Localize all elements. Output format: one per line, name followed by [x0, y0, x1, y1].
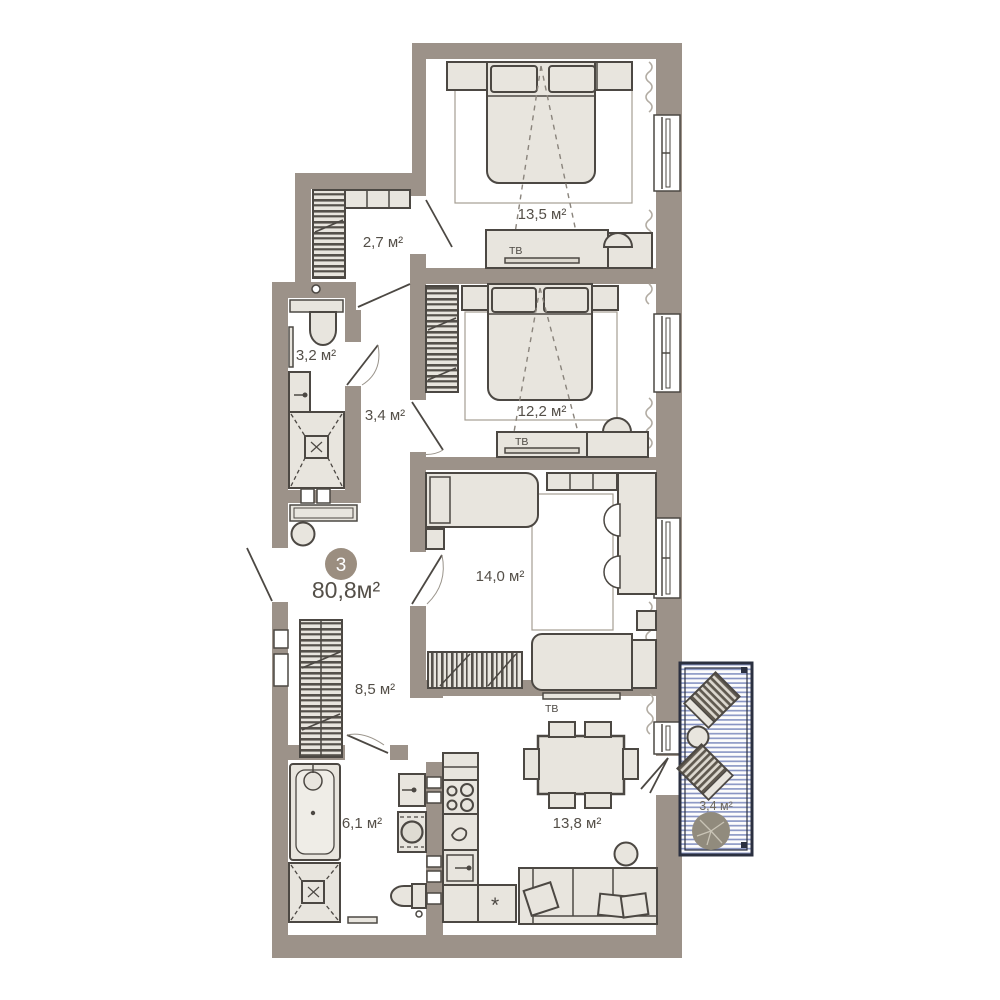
room-hall-lower	[300, 620, 342, 757]
area-label-bedroom-3: 14,0 м²	[476, 568, 525, 585]
bath-mat	[348, 917, 377, 923]
area-label-bedroom-1: 13,5 м²	[518, 206, 567, 223]
dining-table	[538, 736, 624, 794]
pillow	[491, 66, 537, 92]
dining-chair	[623, 749, 638, 779]
threshold	[301, 489, 314, 503]
wall-niche	[274, 654, 288, 686]
area-label-balcony: 3,4 м²	[699, 799, 733, 813]
area-label-bathroom-lower: 6,1 м²	[342, 815, 382, 832]
wall-niche	[274, 630, 288, 648]
threshold	[317, 489, 330, 503]
pillow	[544, 288, 588, 312]
mount-icon	[741, 667, 747, 673]
pillow	[549, 66, 595, 92]
fridge-symbol: *	[491, 894, 499, 917]
sofa	[532, 634, 632, 690]
console-table	[290, 505, 357, 521]
dining-chair	[524, 749, 539, 779]
mirror	[289, 327, 293, 367]
toilet-cistern	[290, 300, 343, 312]
mount-icon	[741, 842, 747, 848]
area-label-bathroom-upper: 3,2 м²	[296, 347, 336, 364]
kitchen-counter	[443, 885, 478, 922]
area-label-living-kitchen: 13,8 м²	[553, 815, 602, 832]
wardrobe	[313, 190, 345, 278]
room-balcony	[677, 663, 752, 855]
tv-label: ТВ	[509, 245, 522, 257]
drain-icon	[311, 811, 315, 815]
valve-icon	[312, 285, 320, 293]
wall-tv	[543, 693, 620, 699]
pillow	[492, 288, 536, 312]
window-bedroom-2	[654, 314, 680, 392]
window-bedroom-1	[654, 115, 680, 191]
toilet	[310, 312, 336, 345]
area-label-hall-middle: 3,4 м²	[365, 407, 405, 424]
apartment-number: 3	[336, 555, 347, 576]
shelf-row	[547, 473, 617, 490]
side-unit	[637, 611, 656, 630]
pouf	[292, 523, 315, 546]
balcony-table	[688, 727, 709, 748]
nightstand	[592, 286, 618, 310]
washer-drum-icon	[402, 822, 423, 843]
toilet	[391, 886, 412, 906]
faucet-icon	[467, 866, 472, 871]
nightstand	[462, 286, 488, 310]
area-label-bedroom-2: 12,2 м²	[518, 403, 567, 420]
floor-hall-middle	[361, 298, 410, 745]
tv	[505, 258, 579, 263]
floor-plan-page: ТВ ТВ	[0, 0, 1000, 1000]
valve-icon	[416, 911, 422, 917]
total-area-label: 80,8м²	[312, 577, 381, 603]
dresser	[587, 432, 648, 457]
pillow	[621, 893, 649, 917]
toilet-cistern	[412, 884, 426, 908]
window-living	[654, 722, 680, 754]
sofa-armrest	[632, 640, 656, 688]
pillow	[430, 477, 450, 523]
wardrobe	[426, 286, 458, 392]
tv-label: ТВ	[545, 703, 558, 715]
bathtub-faucet-icon	[304, 772, 322, 790]
area-label-hall-lower: 8,5 м²	[355, 681, 395, 698]
desk	[618, 473, 656, 594]
tv-label: ТВ	[515, 436, 528, 448]
floor-plan-svg: ТВ ТВ	[0, 0, 1000, 1000]
tv	[505, 448, 579, 453]
dining-chair	[549, 722, 575, 737]
nightstand	[426, 529, 444, 549]
side-table	[615, 843, 638, 866]
dining-chair	[549, 793, 575, 808]
area-label-hall-upper: 2,7 м²	[363, 234, 403, 251]
cabinet-row	[345, 190, 410, 208]
bookshelf	[428, 652, 522, 688]
dining-chair	[585, 793, 611, 808]
faucet-icon	[412, 788, 417, 793]
dining-chair	[585, 722, 611, 737]
window-bedroom-3	[654, 518, 680, 598]
